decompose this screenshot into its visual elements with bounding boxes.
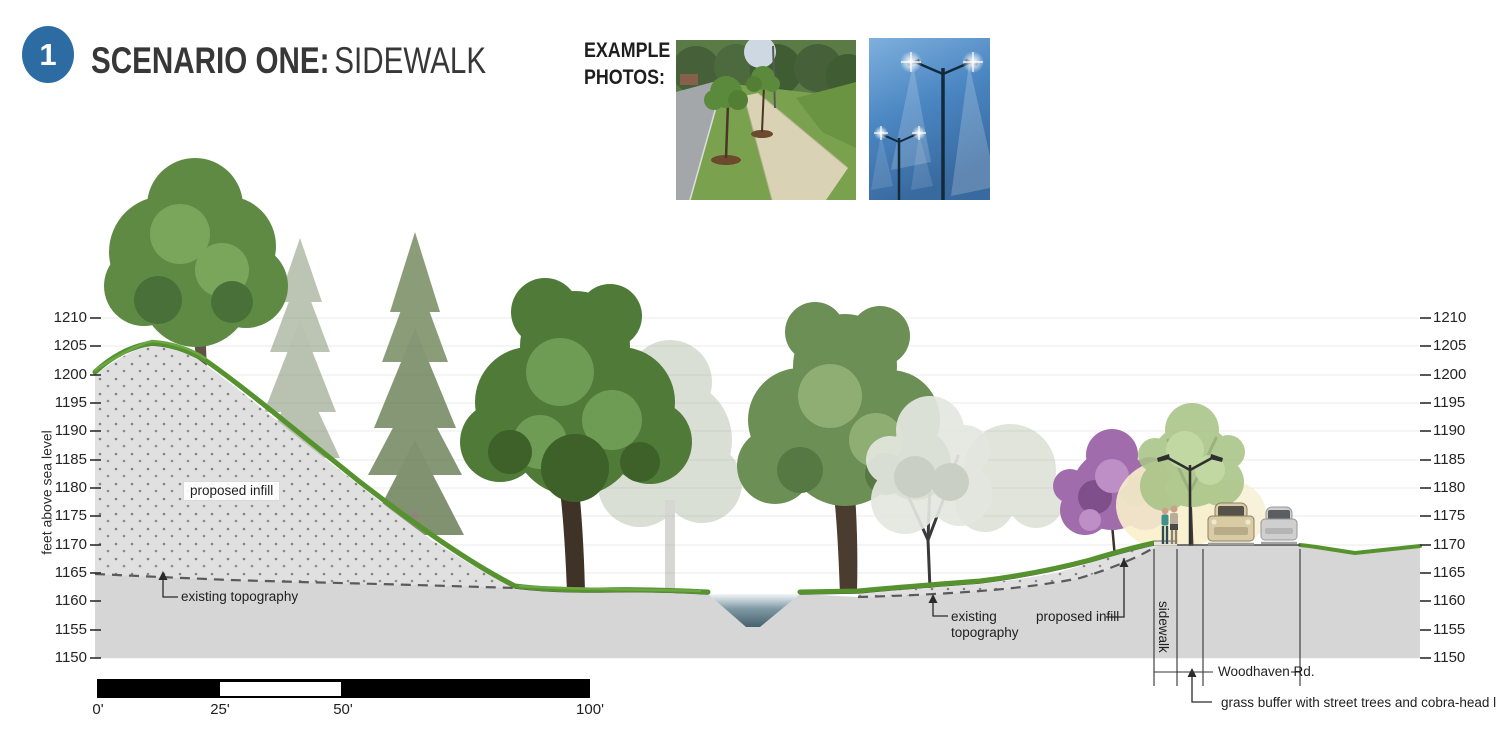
tick-left: 1210 [39,309,87,327]
tick-left: 1185 [39,451,87,469]
tick-right: 1205 [1433,337,1485,355]
proposed-infill-label-right: proposed infill [1036,609,1119,625]
car-silver [1261,507,1297,543]
tick-left: 1205 [39,337,87,355]
tick-right: 1185 [1433,451,1485,469]
proposed-infill-label-left: proposed infill [183,481,280,501]
tick-left: 1160 [39,592,87,610]
tick-left: 1190 [39,422,87,440]
example-photo-lighting [869,38,990,200]
existing-topography-right-line2: topography [951,625,1019,641]
tick-left: 1200 [39,366,87,384]
tick-left: 1165 [39,564,87,582]
tick-left: 1180 [39,479,87,497]
scenario-one-sidewalk-sheet: 1 SCENARIO ONE:SIDEWALK EXAMPLE PHOTOS: [0,0,1497,738]
page-title-bold: SCENARIO ONE: [91,40,329,81]
tick-right: 1180 [1433,479,1485,497]
tick-left: 1150 [39,649,87,667]
existing-topography-right-line1: existing [951,609,1019,625]
tick-right: 1165 [1433,564,1485,582]
tick-right: 1160 [1433,592,1485,610]
existing-topography-label-right: existing topography [951,609,1019,641]
tick-left: 1170 [39,536,87,554]
page-title-regular: SIDEWALK [334,40,486,81]
example-photo-sidewalk [676,40,856,200]
scenario-number: 1 [39,37,56,73]
example-photos-label: EXAMPLE PHOTOS: [584,37,678,91]
road-name-label: Woodhaven Rd. [1218,664,1315,680]
tick-right: 1175 [1433,507,1485,525]
scenario-number-badge: 1 [22,26,74,83]
tick-right: 1150 [1433,649,1485,667]
page-title: SCENARIO ONE:SIDEWALK [91,40,486,82]
tick-left: 1175 [39,507,87,525]
scale-label-0: 0' [86,701,110,719]
tick-right: 1190 [1433,422,1485,440]
tick-right: 1200 [1433,366,1485,384]
tick-right: 1195 [1433,394,1485,412]
scale-label-100: 100' [570,701,610,719]
tick-right: 1155 [1433,621,1485,639]
large-deciduous-tree-left [104,158,288,372]
tick-right: 1210 [1433,309,1485,327]
conifer-tree [366,232,464,540]
tick-right: 1170 [1433,536,1485,554]
tick-left: 1195 [39,394,87,412]
scale-bar-white-segment [220,682,341,696]
tick-left: 1155 [39,621,87,639]
scale-bar [97,679,590,698]
scale-label-25: 25' [204,701,236,719]
sidewalk-label: sidewalk [1156,601,1170,671]
car-tan [1208,503,1254,544]
existing-topography-label-left: existing topography [181,589,298,605]
scale-label-50: 50' [327,701,359,719]
grass-buffer-label: grass buffer with street trees and cobra… [1221,695,1497,711]
